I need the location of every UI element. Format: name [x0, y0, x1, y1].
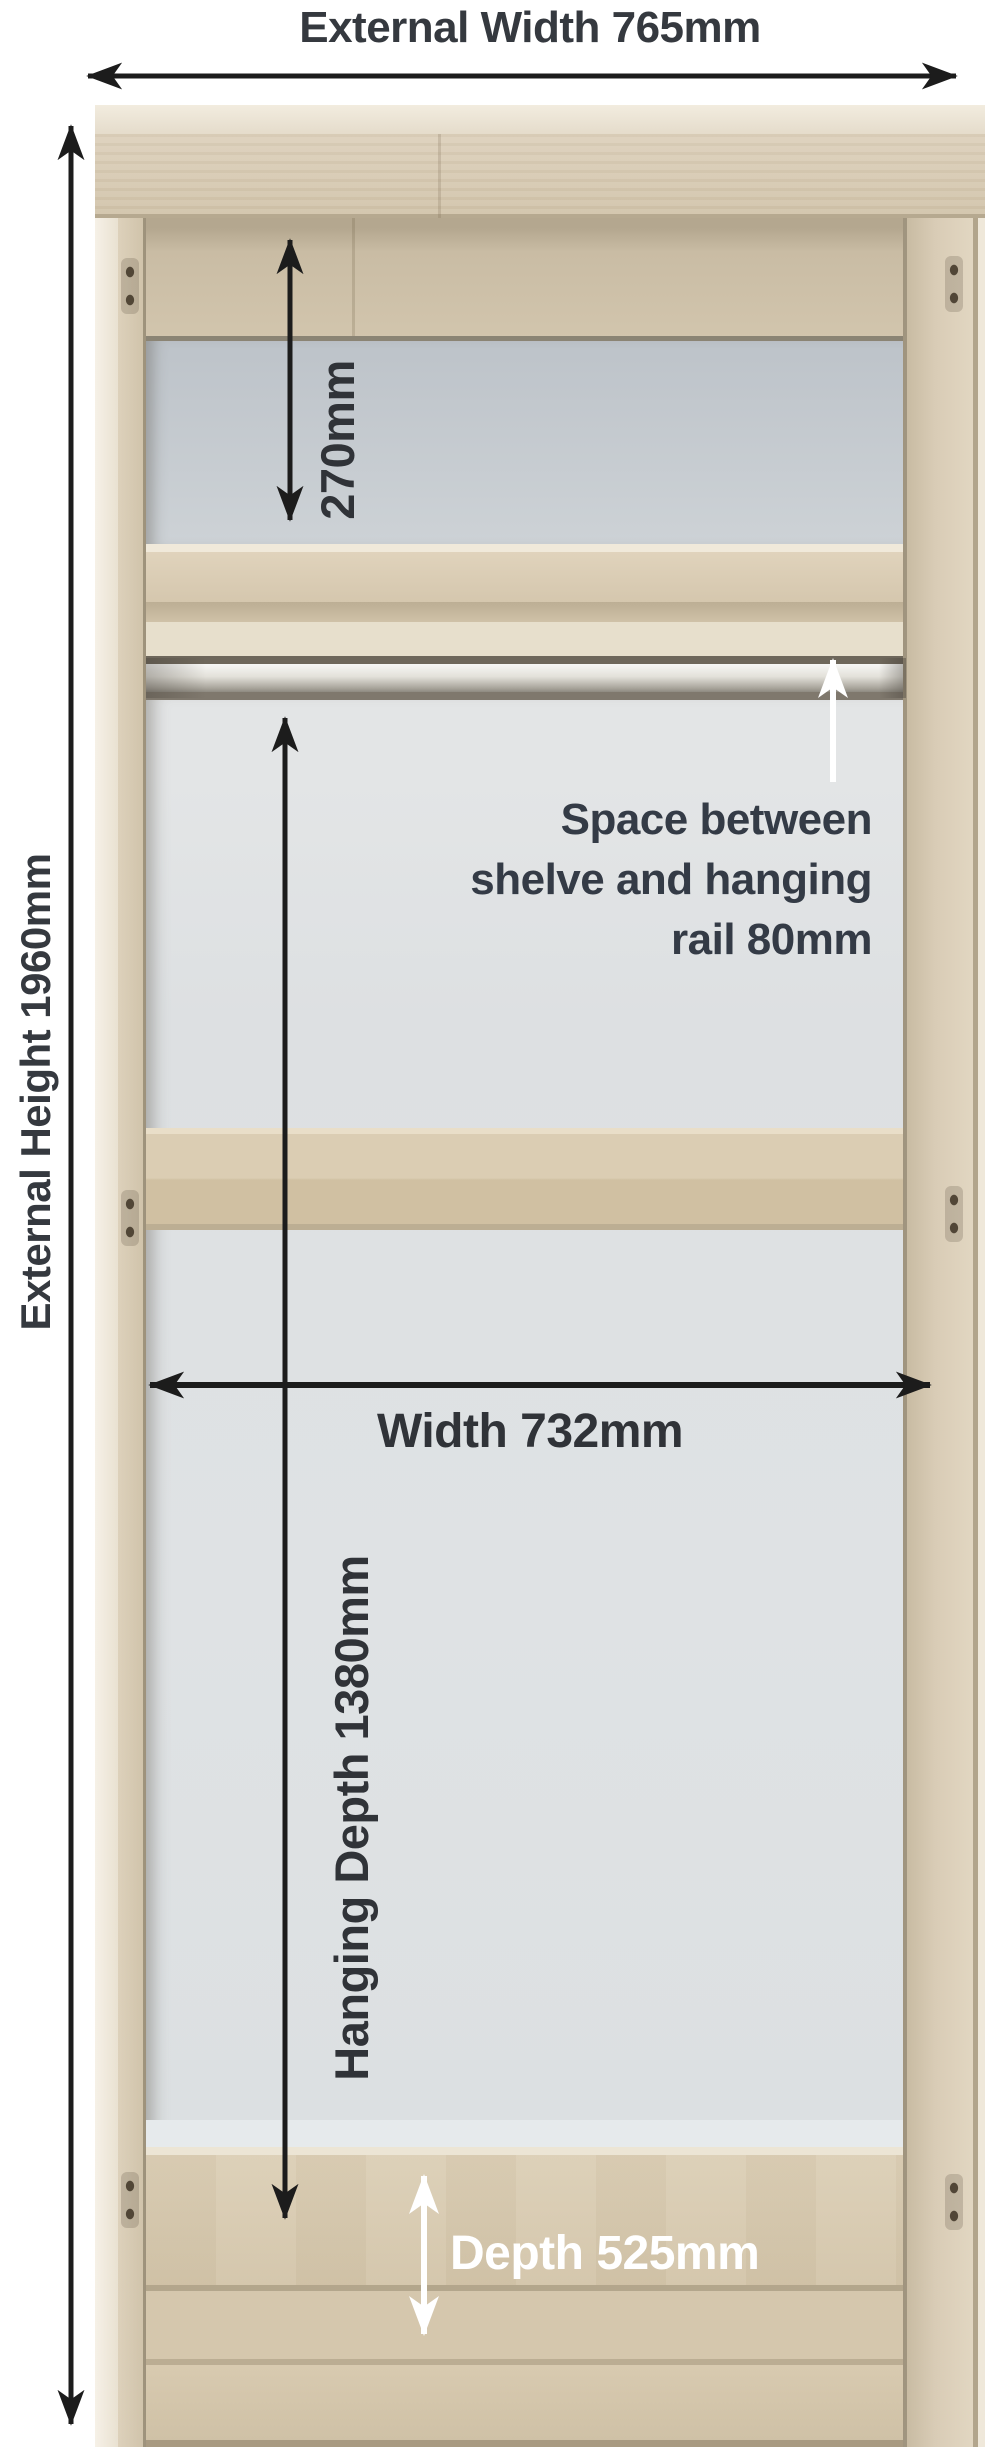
plinth-upper	[146, 2291, 903, 2359]
upper-back-panel	[146, 341, 903, 544]
wardrobe-dimension-diagram: External Width 765mm External Height 196…	[0, 0, 1000, 2462]
hinge-icon	[121, 2172, 139, 2228]
internal-width-label: Width 732mm	[280, 1404, 780, 1460]
hanging-rail	[146, 664, 903, 692]
floor-front-highlight	[146, 2147, 903, 2155]
shelf-underside-shadow	[146, 602, 903, 622]
shelf-rail-space-line-2: shelve and hanging	[420, 850, 872, 910]
plinth-lower	[146, 2365, 903, 2440]
hinge-icon	[945, 1186, 963, 1242]
interior-top-wood-strip	[146, 218, 903, 338]
hinge-icon	[121, 258, 139, 314]
shelf-rail-space-line-1: Space between	[420, 790, 872, 850]
back-panel-bottom-strip	[146, 2120, 903, 2147]
left-side-panel-outer-edge	[95, 105, 118, 2447]
left-side-panel	[118, 105, 146, 2447]
hanging-depth-label: Hanging Depth 1380mm	[326, 1498, 378, 2138]
hanging-rail-shadow	[146, 692, 903, 700]
shelf-rail-space-label: Space between shelve and hanging rail 80…	[420, 790, 872, 976]
under-shelf-wood	[146, 622, 903, 656]
hinge-icon	[945, 256, 963, 312]
top-front-rail-seam	[438, 134, 441, 218]
top-shelf-space-label: 270mm	[313, 310, 363, 570]
back-support-rail	[146, 1128, 903, 1230]
shelf-rail-space-line-3: rail 80mm	[420, 910, 872, 970]
hinge-icon	[945, 2174, 963, 2230]
top-panel-edge	[95, 105, 985, 134]
hanging-rail-left-bracket	[146, 658, 206, 698]
right-side-panel	[903, 105, 975, 2447]
right-side-panel-outer-edge	[978, 105, 985, 2447]
hanging-rail-top-edge	[146, 656, 903, 664]
top-shelf	[146, 552, 903, 602]
top-front-rail	[95, 134, 985, 218]
right-panel-inner-seam	[903, 218, 907, 2447]
external-height-label: External Height 1960mm	[11, 782, 61, 1402]
external-width-label: External Width 765mm	[180, 2, 880, 54]
hanging-rail-right-bracket	[879, 658, 906, 698]
shelf-front-highlight	[146, 544, 903, 552]
internal-depth-label: Depth 525mm	[450, 2226, 870, 2282]
wardrobe-bottom-edge	[146, 2440, 903, 2447]
hinge-icon	[121, 1190, 139, 1246]
